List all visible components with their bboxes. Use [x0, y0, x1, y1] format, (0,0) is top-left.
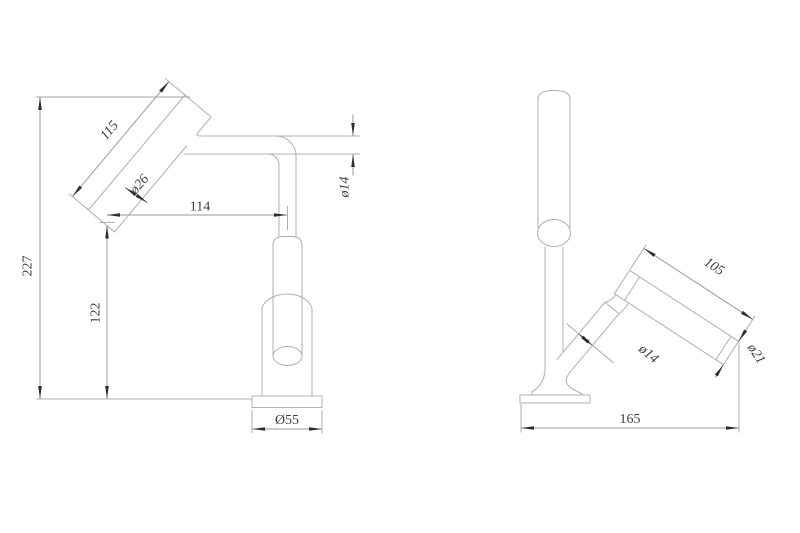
dim-label-post-diameter: ø14	[635, 341, 661, 367]
side-neck-upper	[605, 295, 616, 303]
dim-label-overall-height: 227	[21, 256, 36, 277]
side-riser-cylinder	[538, 91, 570, 229]
ext-line-105-left	[630, 245, 647, 270]
front-elbow-inner	[268, 154, 279, 237]
faucet-technical-drawing: 227 122 114 115 ø26 ø14 Ø	[0, 0, 800, 533]
front-body-cylinder	[262, 294, 312, 396]
dim-label-head-end-diameter: ø21	[743, 340, 768, 367]
front-view-dimensions: 227 122 114 115 ø26 ø14 Ø	[21, 79, 354, 434]
dim-label-overall-depth: 165	[620, 412, 641, 427]
front-view-geometry	[36, 95, 360, 408]
front-base-plate	[252, 396, 322, 408]
faucet-technical-drawing-page: 227 122 114 115 ø26 ø14 Ø	[0, 0, 800, 533]
side-riser-bottom-ellipse	[538, 220, 571, 247]
dim-label-side-head-length: 105	[701, 255, 727, 279]
side-neck-lower	[619, 303, 629, 314]
ext-line-115-bottom	[69, 194, 89, 210]
side-head-cylinder	[614, 270, 738, 364]
side-base-plate	[520, 395, 590, 403]
side-view-dimensions: 105 ø14 ø21 165	[521, 245, 768, 433]
dim-line-side-14-b	[586, 340, 593, 346]
dim-line-21-upper	[739, 329, 747, 342]
front-cartridge-bottom-ellipse	[273, 347, 302, 366]
dim-label-head-diameter: ø26	[127, 172, 153, 198]
side-post-collar	[605, 302, 619, 314]
side-view: 105 ø14 ø21 165	[520, 91, 768, 433]
front-cartridge-cylinder	[273, 237, 302, 357]
ext-line-115-top	[166, 79, 186, 95]
dim-label-base-diameter: Ø55	[275, 413, 299, 428]
side-view-geometry	[520, 91, 739, 404]
dim-label-horizontal-reach: 114	[190, 200, 210, 215]
dim-label-outlet-height: 122	[89, 303, 104, 324]
side-foot-left	[532, 369, 545, 395]
dim-line-115	[72, 82, 168, 197]
dim-line-21-lower	[715, 365, 723, 378]
dim-label-arm-diameter: ø14	[338, 177, 353, 199]
front-view: 227 122 114 115 ø26 ø14 Ø	[21, 79, 361, 434]
dim-label-head-length: 115	[98, 118, 122, 143]
side-post-upper-edge	[557, 302, 605, 360]
dim-line-side-14-a	[579, 334, 586, 340]
front-head-outline-upper	[89, 95, 212, 210]
side-head-joint-line	[625, 277, 640, 300]
side-foot-right-post-edge	[566, 314, 619, 395]
dim-line-105	[644, 248, 753, 319]
